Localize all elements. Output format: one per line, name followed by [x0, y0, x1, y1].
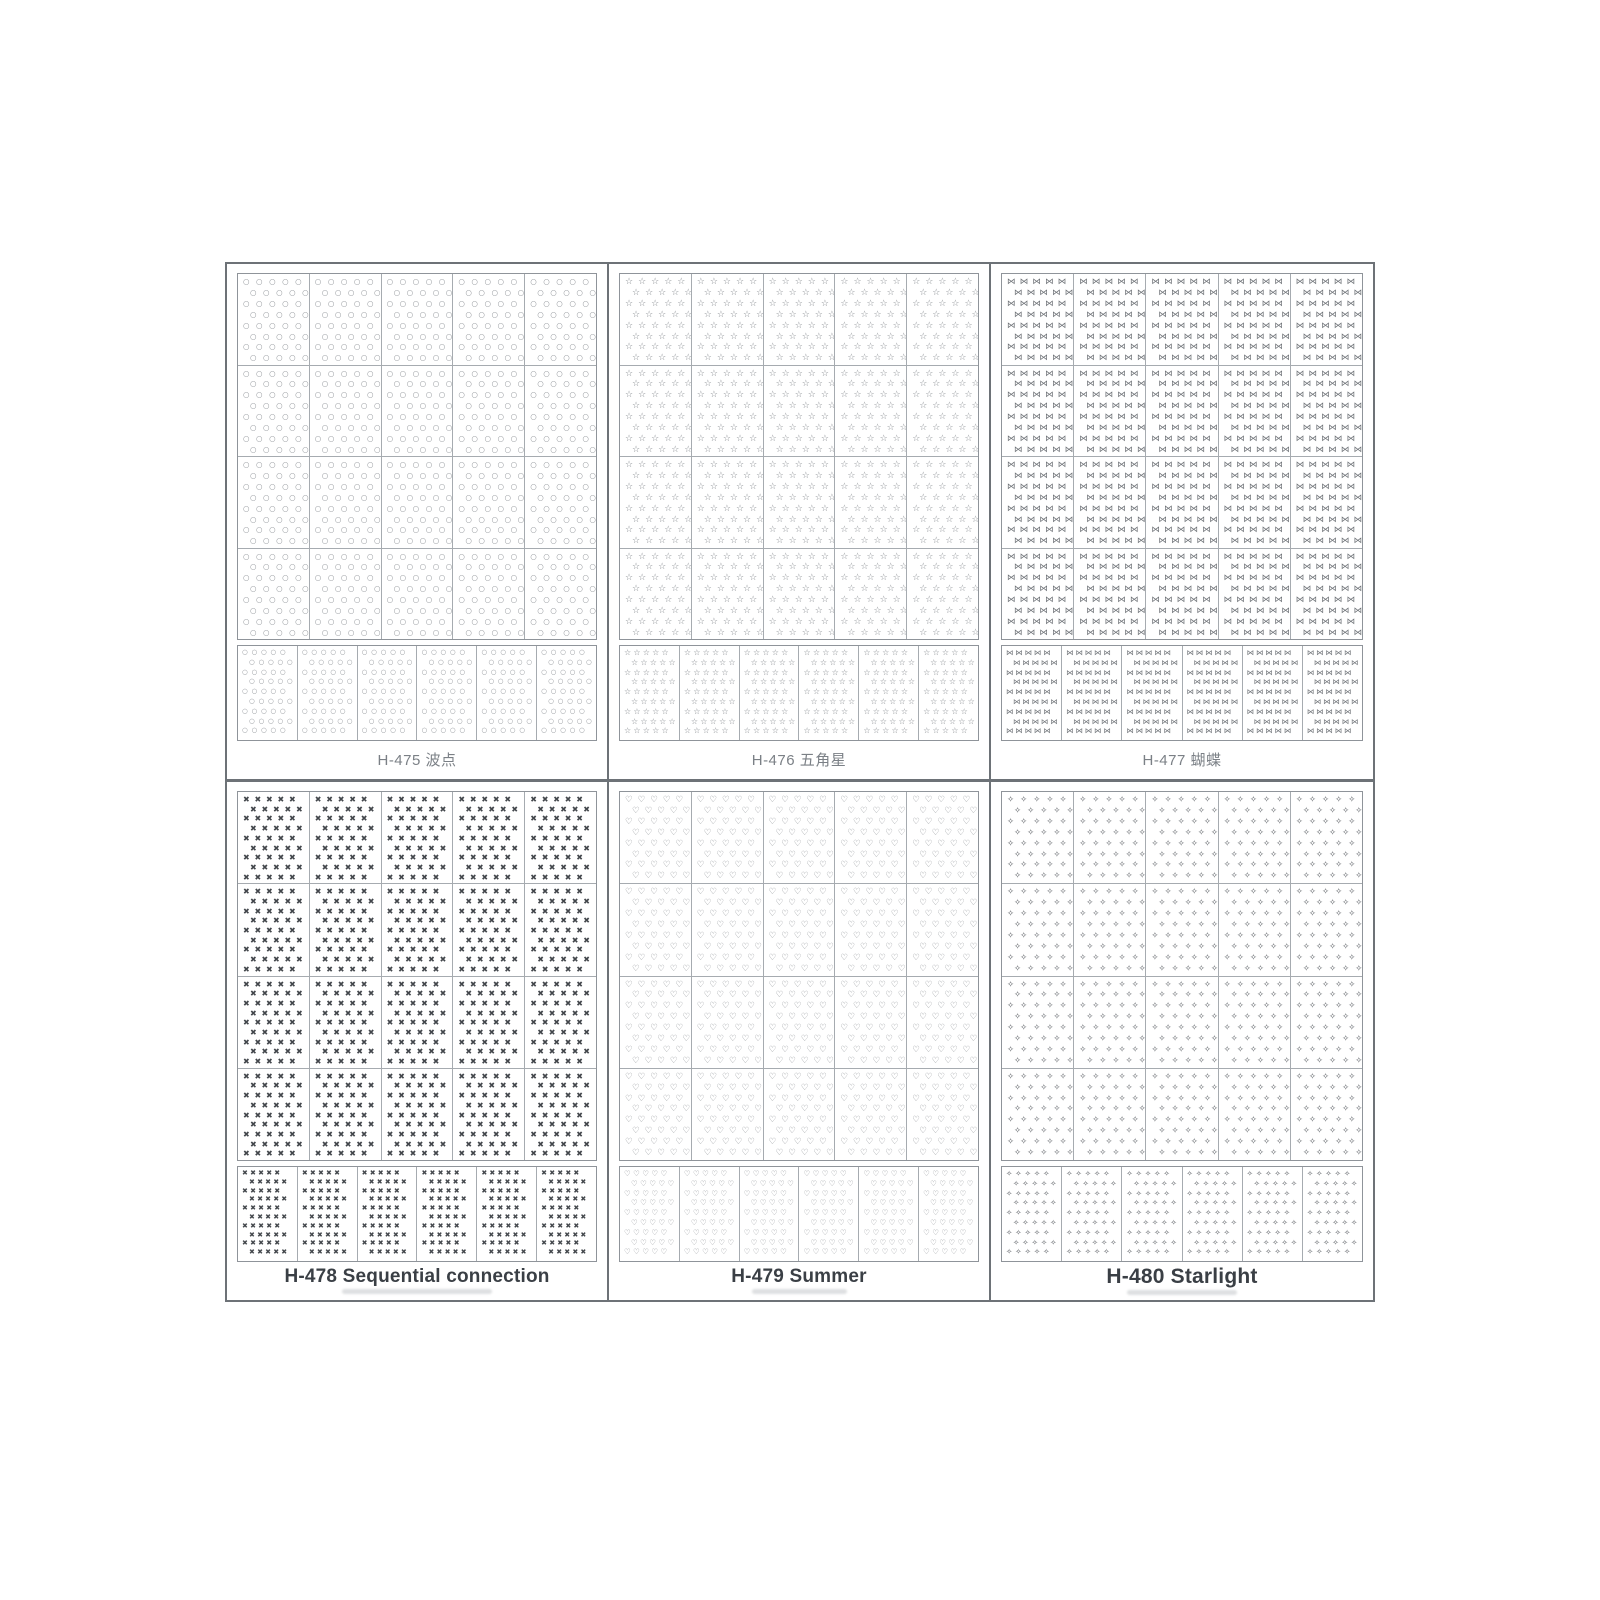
glyph-row: ☆☆☆☆☆: [697, 379, 763, 390]
glyph-row: ✖✖✖✖✖: [315, 936, 381, 946]
glyph-row: ⋈⋈⋈⋈⋈: [1066, 648, 1121, 658]
pattern-cell: ⋈⋈⋈⋈⋈⋈⋈⋈⋈⋈⋈⋈⋈⋈⋈⋈⋈⋈⋈⋈⋈⋈⋈⋈⋈⋈⋈⋈⋈⋈⋈⋈⋈⋈⋈⋈⋈⋈⋈⋈: [1074, 457, 1145, 548]
glyph-row: ✖✖✖✖✖: [421, 1239, 476, 1248]
glyph-row: ⋈⋈⋈⋈⋈: [1007, 412, 1073, 423]
glyph-row: ☆☆☆☆☆: [684, 648, 739, 658]
glyph-row: ✖✖✖✖✖: [302, 1169, 357, 1178]
glyph-row: ⋈⋈⋈⋈⋈: [1079, 369, 1145, 380]
glyph-row: ✧✧✧✧✧: [1079, 898, 1145, 909]
glyph-row: ✖✖✖✖✖: [530, 824, 596, 834]
glyph-row: ○○○○○: [458, 353, 524, 364]
glyph-row: ○○○○○: [421, 677, 476, 687]
glyph-row: ○○○○○: [530, 584, 596, 595]
glyph-row: ✧✧✧✧✧: [1187, 1208, 1242, 1218]
glyph-row: ✧✧✧✧✧: [1151, 980, 1217, 991]
glyph-row: ♡♡♡♡♡: [697, 1094, 763, 1105]
pattern-strip: ○○○○○○○○○○○○○○○○○○○○○○○○○○○○○○○○○○○○○○○○…: [298, 646, 357, 740]
glyph-row: ○○○○○: [458, 423, 524, 434]
pattern-cell: ☆☆☆☆☆☆☆☆☆☆☆☆☆☆☆☆☆☆☆☆☆☆☆☆☆☆☆☆☆☆☆☆☆☆☆☆☆☆☆☆: [620, 457, 691, 548]
glyph-row: ✧✧✧✧✧: [1307, 1198, 1362, 1208]
glyph-row: ♡♡♡♡♡: [912, 887, 978, 898]
glyph-row: ♡♡♡♡♡: [769, 806, 835, 817]
pattern-strip: ⋈⋈⋈⋈⋈⋈⋈⋈⋈⋈⋈⋈⋈⋈⋈⋈⋈⋈⋈⋈⋈⋈⋈⋈⋈⋈⋈⋈⋈⋈⋈⋈⋈⋈⋈⋈⋈⋈⋈⋈…: [1243, 646, 1302, 740]
glyph-row: ⋈⋈⋈⋈⋈: [1151, 493, 1217, 504]
glyph-row: ♡♡♡♡♡: [625, 1045, 691, 1056]
glyph-row: ☆☆☆☆☆: [769, 332, 835, 343]
glyph-row: ⋈⋈⋈⋈⋈: [1151, 423, 1217, 434]
glyph-row: ✧✧✧✧✧: [1007, 1045, 1073, 1056]
glyph-row: ♡♡♡♡♡: [769, 1001, 835, 1012]
glyph-row: ✧✧✧✧✧: [1007, 887, 1073, 898]
pattern-cell: ♡♡♡♡♡♡♡♡♡♡♡♡♡♡♡♡♡♡♡♡♡♡♡♡♡♡♡♡♡♡♡♡♡♡♡♡♡♡♡♡: [835, 1069, 906, 1160]
glyph-row: ○○○○○: [362, 668, 417, 678]
glyph-row: ☆☆☆☆☆: [625, 299, 691, 310]
glyph-row: ⋈⋈⋈⋈⋈: [1079, 493, 1145, 504]
pattern-strip: ○○○○○○○○○○○○○○○○○○○○○○○○○○○○○○○○○○○○○○○○…: [417, 646, 476, 740]
glyph-row: ♡♡♡♡♡: [840, 806, 906, 817]
glyph-row: ⋈⋈⋈⋈⋈: [1224, 445, 1290, 456]
glyph-row: ○○○○○: [387, 288, 453, 299]
glyph-row: ♡♡♡♡♡: [840, 1056, 906, 1067]
glyph-row: ♡♡♡♡♡: [625, 1056, 691, 1067]
glyph-row: ○○○○○: [242, 717, 297, 727]
glyph-row: ☆☆☆☆☆: [697, 288, 763, 299]
glyph-row: ○○○○○: [243, 504, 309, 515]
pattern-cell: ♡♡♡♡♡♡♡♡♡♡♡♡♡♡♡♡♡♡♡♡♡♡♡♡♡♡♡♡♡♡♡♡♡♡♡♡♡♡♡♡: [620, 1069, 691, 1160]
glyph-row: ✧✧✧✧✧: [1224, 1023, 1290, 1034]
glyph-row: ✧✧✧✧✧: [1296, 850, 1362, 861]
glyph-row: ○○○○○: [458, 573, 524, 584]
glyph-row: ☆☆☆☆☆: [769, 299, 835, 310]
glyph-row: ○○○○○: [315, 525, 381, 536]
glyph-row: ○○○○○: [530, 445, 596, 456]
glyph-row: ⋈⋈⋈⋈⋈: [1079, 525, 1145, 536]
pattern-strip: ✧✧✧✧✧✧✧✧✧✧✧✧✧✧✧✧✧✧✧✧✧✧✧✧✧✧✧✧✧✧✧✧✧✧✧✧✧✧✧✧…: [1303, 1167, 1362, 1261]
glyph-row: ✧✧✧✧✧: [1224, 1056, 1290, 1067]
glyph-row: ♡♡♡♡♡: [697, 964, 763, 975]
glyph-row: ✖✖✖✖✖: [302, 1187, 357, 1196]
glyph-row: ☆☆☆☆☆: [840, 617, 906, 628]
glyph-row: ⋈⋈⋈⋈⋈: [1247, 687, 1302, 697]
glyph-row: ☆☆☆☆☆: [840, 536, 906, 547]
glyph-row: ✧✧✧✧✧: [1006, 1228, 1061, 1238]
glyph-row: ✧✧✧✧✧: [1079, 871, 1145, 882]
glyph-row: ⋈⋈⋈⋈⋈: [1079, 617, 1145, 628]
glyph-row: ⋈⋈⋈⋈⋈: [1307, 707, 1362, 717]
glyph-row: ✧✧✧✧✧: [1224, 806, 1290, 817]
glyph-row: ○○○○○: [243, 379, 309, 390]
glyph-row: ⋈⋈⋈⋈⋈: [1126, 648, 1181, 658]
glyph-row: ☆☆☆☆☆: [697, 369, 763, 380]
glyph-row: ✖✖✖✖✖: [458, 907, 524, 917]
glyph-row: ✧✧✧✧✧: [1296, 1137, 1362, 1148]
glyph-row: ○○○○○: [315, 332, 381, 343]
glyph-row: ✖✖✖✖✖: [315, 814, 381, 824]
glyph-row: ⋈⋈⋈⋈⋈: [1126, 668, 1181, 678]
glyph-row: ☆☆☆☆☆: [769, 353, 835, 364]
glyph-row: ✖✖✖✖✖: [530, 907, 596, 917]
glyph-row: ☆☆☆☆☆: [624, 677, 679, 687]
glyph-row: ⋈⋈⋈⋈⋈: [1224, 617, 1290, 628]
glyph-row: ♡♡♡♡♡: [625, 806, 691, 817]
glyph-row: ✧✧✧✧✧: [1079, 953, 1145, 964]
glyph-row: ♡♡♡♡♡: [840, 839, 906, 850]
glyph-row: ♡♡♡♡♡: [625, 990, 691, 1001]
glyph-row: ♡♡♡♡♡: [863, 1179, 918, 1189]
pattern-cell: ☆☆☆☆☆☆☆☆☆☆☆☆☆☆☆☆☆☆☆☆☆☆☆☆☆☆☆☆☆☆☆☆☆☆☆☆☆☆☆☆: [692, 274, 763, 365]
glyph-row: ☆☆☆☆☆: [912, 482, 978, 493]
glyph-row: ✖✖✖✖✖: [315, 1028, 381, 1038]
glyph-row: ○○○○○: [458, 379, 524, 390]
glyph-row: ⋈⋈⋈⋈⋈: [1296, 617, 1362, 628]
glyph-row: ♡♡♡♡♡: [803, 1179, 858, 1189]
glyph-row: ☆☆☆☆☆: [625, 504, 691, 515]
glyph-row: ✧✧✧✧✧: [1079, 817, 1145, 828]
glyph-row: ☆☆☆☆☆: [625, 423, 691, 434]
pattern-cell: ✖✖✖✖✖✖✖✖✖✖✖✖✖✖✖✖✖✖✖✖✖✖✖✖✖✖✖✖✖✖✖✖✖✖✖✖✖✖✖✖…: [525, 884, 596, 975]
glyph-row: ✧✧✧✧✧: [1296, 1034, 1362, 1045]
glyph-row: ✧✧✧✧✧: [1007, 898, 1073, 909]
glyph-row: ✧✧✧✧✧: [1007, 795, 1073, 806]
glyph-row: ✧✧✧✧✧: [1007, 1072, 1073, 1083]
sparkle-strip-row: ✧✧✧✧✧✧✧✧✧✧✧✧✧✧✧✧✧✧✧✧✧✧✧✧✧✧✧✧✧✧✧✧✧✧✧✧✧✧✧✧…: [1001, 1166, 1363, 1262]
glyph-row: ✧✧✧✧✧: [1307, 1218, 1362, 1228]
glyph-row: ✖✖✖✖✖: [243, 916, 309, 926]
glyph-row: ○○○○○: [243, 482, 309, 493]
glyph-row: ○○○○○: [315, 482, 381, 493]
glyph-row: ⋈⋈⋈⋈⋈: [1007, 332, 1073, 343]
glyph-row: ⋈⋈⋈⋈⋈: [1007, 628, 1073, 639]
glyph-row: ⋈⋈⋈⋈⋈: [1006, 668, 1061, 678]
glyph-row: ☆☆☆☆☆: [840, 434, 906, 445]
glyph-row: ⋈⋈⋈⋈⋈: [1007, 310, 1073, 321]
glyph-row: ⋈⋈⋈⋈⋈: [1247, 697, 1302, 707]
pattern-cell: ♡♡♡♡♡♡♡♡♡♡♡♡♡♡♡♡♡♡♡♡♡♡♡♡♡♡♡♡♡♡♡♡♡♡♡♡♡♡♡♡: [764, 1069, 835, 1160]
pattern-cell: ✧✧✧✧✧✧✧✧✧✧✧✧✧✧✧✧✧✧✧✧✧✧✧✧✧✧✧✧✧✧✧✧✧✧✧✧✧✧✧✧: [1219, 792, 1290, 883]
glyph-row: ✧✧✧✧✧: [1296, 942, 1362, 953]
pattern-cell: ✧✧✧✧✧✧✧✧✧✧✧✧✧✧✧✧✧✧✧✧✧✧✧✧✧✧✧✧✧✧✧✧✧✧✧✧✧✧✧✧: [1146, 977, 1217, 1068]
glyph-row: ✖✖✖✖✖: [530, 999, 596, 1009]
pattern-cell: ☆☆☆☆☆☆☆☆☆☆☆☆☆☆☆☆☆☆☆☆☆☆☆☆☆☆☆☆☆☆☆☆☆☆☆☆☆☆☆☆: [764, 457, 835, 548]
glyph-row: ⋈⋈⋈⋈⋈: [1224, 536, 1290, 547]
glyph-row: ○○○○○: [458, 277, 524, 288]
pattern-cell: ✧✧✧✧✧✧✧✧✧✧✧✧✧✧✧✧✧✧✧✧✧✧✧✧✧✧✧✧✧✧✧✧✧✧✧✧✧✧✧✧: [1002, 884, 1073, 975]
pattern-cell: ⋈⋈⋈⋈⋈⋈⋈⋈⋈⋈⋈⋈⋈⋈⋈⋈⋈⋈⋈⋈⋈⋈⋈⋈⋈⋈⋈⋈⋈⋈⋈⋈⋈⋈⋈⋈⋈⋈⋈⋈: [1219, 366, 1290, 457]
glyph-row: ♡♡♡♡♡: [625, 1126, 691, 1137]
glyph-row: ☆☆☆☆☆: [912, 525, 978, 536]
pattern-cell: ⋈⋈⋈⋈⋈⋈⋈⋈⋈⋈⋈⋈⋈⋈⋈⋈⋈⋈⋈⋈⋈⋈⋈⋈⋈⋈⋈⋈⋈⋈⋈⋈⋈⋈⋈⋈⋈⋈⋈⋈: [1291, 457, 1362, 548]
glyph-row: ♡♡♡♡♡: [863, 1238, 918, 1248]
glyph-row: ✧✧✧✧✧: [1151, 942, 1217, 953]
glyph-row: ♡♡♡♡♡: [684, 1208, 739, 1218]
glyph-row: ✧✧✧✧✧: [1224, 1115, 1290, 1126]
glyph-row: ⋈⋈⋈⋈⋈: [1296, 321, 1362, 332]
glyph-row: ✧✧✧✧✧: [1296, 839, 1362, 850]
glyph-row: ✖✖✖✖✖: [421, 1195, 476, 1204]
glyph-row: ♡♡♡♡♡: [912, 1083, 978, 1094]
glyph-row: ☆☆☆☆☆: [684, 677, 739, 687]
glyph-row: ○○○○○: [243, 460, 309, 471]
glyph-row: ☆☆☆☆☆: [625, 390, 691, 401]
glyph-row: ⋈⋈⋈⋈⋈: [1151, 482, 1217, 493]
pattern-cell: ☆☆☆☆☆☆☆☆☆☆☆☆☆☆☆☆☆☆☆☆☆☆☆☆☆☆☆☆☆☆☆☆☆☆☆☆☆☆☆☆: [907, 457, 978, 548]
glyph-row: ✧✧✧✧✧: [1007, 990, 1073, 1001]
glyph-row: ✖✖✖✖✖: [458, 1038, 524, 1048]
pattern-strip: ✧✧✧✧✧✧✧✧✧✧✧✧✧✧✧✧✧✧✧✧✧✧✧✧✧✧✧✧✧✧✧✧✧✧✧✧✧✧✧✧…: [1183, 1167, 1242, 1261]
glyph-row: ✖✖✖✖✖: [541, 1204, 596, 1213]
glyph-row: ○○○○○: [362, 697, 417, 707]
glyph-row: ✧✧✧✧✧: [1007, 1012, 1073, 1023]
glyph-row: ☆☆☆☆☆: [625, 515, 691, 526]
glyph-row: ✖✖✖✖✖: [315, 795, 381, 805]
glyph-row: ✖✖✖✖✖: [458, 897, 524, 907]
glyph-row: ✧✧✧✧✧: [1079, 1001, 1145, 1012]
pattern-cell: ✧✧✧✧✧✧✧✧✧✧✧✧✧✧✧✧✧✧✧✧✧✧✧✧✧✧✧✧✧✧✧✧✧✧✧✧✧✧✧✧: [1146, 884, 1217, 975]
glyph-row: ⋈⋈⋈⋈⋈: [1079, 536, 1145, 547]
glyph-row: ♡♡♡♡♡: [697, 931, 763, 942]
glyph-row: ♡♡♡♡♡: [912, 931, 978, 942]
glyph-row: ✖✖✖✖✖: [315, 1009, 381, 1019]
glyph-row: ☆☆☆☆☆: [840, 573, 906, 584]
glyph-row: ☆☆☆☆☆: [744, 726, 799, 736]
print-smudge: [1127, 1290, 1237, 1295]
pattern-cell: ♡♡♡♡♡♡♡♡♡♡♡♡♡♡♡♡♡♡♡♡♡♡♡♡♡♡♡♡♡♡♡♡♡♡♡♡♡♡♡♡: [835, 977, 906, 1068]
glyph-row: ✧✧✧✧✧: [1247, 1247, 1302, 1257]
glyph-row: ☆☆☆☆☆: [912, 606, 978, 617]
glyph-row: ✧✧✧✧✧: [1151, 931, 1217, 942]
glyph-row: ○○○○○: [387, 471, 453, 482]
glyph-row: ✧✧✧✧✧: [1079, 920, 1145, 931]
glyph-row: ⋈⋈⋈⋈⋈: [1007, 434, 1073, 445]
glyph-row: ♡♡♡♡♡: [625, 795, 691, 806]
glyph-row: ☆☆☆☆☆: [625, 552, 691, 563]
glyph-row: ♡♡♡♡♡: [684, 1247, 739, 1257]
glyph-row: ⋈⋈⋈⋈⋈: [1151, 434, 1217, 445]
glyph-row: ✖✖✖✖✖: [243, 1130, 309, 1140]
glyph-row: ♡♡♡♡♡: [697, 1072, 763, 1083]
glyph-row: ✖✖✖✖✖: [541, 1248, 596, 1257]
glyph-row: ✖✖✖✖✖: [362, 1248, 417, 1257]
glyph-row: ✖✖✖✖✖: [481, 1222, 536, 1231]
glyph-row: ♡♡♡♡♡: [840, 1001, 906, 1012]
glyph-row: ○○○○○: [458, 536, 524, 547]
glyph-row: ○○○○○: [530, 595, 596, 606]
glyph-row: ☆☆☆☆☆: [697, 434, 763, 445]
glyph-row: ⋈⋈⋈⋈⋈: [1296, 434, 1362, 445]
glyph-row: ✖✖✖✖✖: [530, 1057, 596, 1067]
glyph-row: ✖✖✖✖✖: [530, 897, 596, 907]
pattern-cell: ✖✖✖✖✖✖✖✖✖✖✖✖✖✖✖✖✖✖✖✖✖✖✖✖✖✖✖✖✖✖✖✖✖✖✖✖✖✖✖✖…: [453, 1069, 524, 1160]
glyph-row: ♡♡♡♡♡: [803, 1169, 858, 1179]
glyph-row: ○○○○○: [458, 584, 524, 595]
glyph-row: ✧✧✧✧✧: [1079, 828, 1145, 839]
glyph-row: ✖✖✖✖✖: [387, 1028, 453, 1038]
glyph-row: ✧✧✧✧✧: [1224, 990, 1290, 1001]
glyph-row: ♡♡♡♡♡: [769, 1056, 835, 1067]
glyph-row: ○○○○○: [315, 342, 381, 353]
glyph-row: ☆☆☆☆☆: [769, 288, 835, 299]
pattern-cell: ⋈⋈⋈⋈⋈⋈⋈⋈⋈⋈⋈⋈⋈⋈⋈⋈⋈⋈⋈⋈⋈⋈⋈⋈⋈⋈⋈⋈⋈⋈⋈⋈⋈⋈⋈⋈⋈⋈⋈⋈: [1002, 549, 1073, 640]
pattern-cell: ☆☆☆☆☆☆☆☆☆☆☆☆☆☆☆☆☆☆☆☆☆☆☆☆☆☆☆☆☆☆☆☆☆☆☆☆☆☆☆☆: [835, 549, 906, 640]
glyph-row: ○○○○○: [362, 677, 417, 687]
glyph-row: ✖✖✖✖✖: [243, 1101, 309, 1111]
glyph-row: ♡♡♡♡♡: [912, 1104, 978, 1115]
pattern-cell: ☆☆☆☆☆☆☆☆☆☆☆☆☆☆☆☆☆☆☆☆☆☆☆☆☆☆☆☆☆☆☆☆☆☆☆☆☆☆☆☆: [907, 549, 978, 640]
glyph-row: ○○○○○: [387, 321, 453, 332]
glyph-row: ⋈⋈⋈⋈⋈: [1296, 628, 1362, 639]
glyph-row: ⋈⋈⋈⋈⋈: [1066, 677, 1121, 687]
glyph-row: ⋈⋈⋈⋈⋈: [1079, 552, 1145, 563]
glyph-row: ○○○○○: [387, 606, 453, 617]
glyph-row: ⋈⋈⋈⋈⋈: [1296, 562, 1362, 573]
glyph-row: ○○○○○: [315, 299, 381, 310]
glyph-row: ○○○○○: [302, 697, 357, 707]
butterfly-strip-row: ⋈⋈⋈⋈⋈⋈⋈⋈⋈⋈⋈⋈⋈⋈⋈⋈⋈⋈⋈⋈⋈⋈⋈⋈⋈⋈⋈⋈⋈⋈⋈⋈⋈⋈⋈⋈⋈⋈⋈⋈…: [1001, 645, 1363, 741]
glyph-row: ♡♡♡♡♡: [769, 953, 835, 964]
glyph-row: ♡♡♡♡♡: [912, 795, 978, 806]
glyph-row: ♡♡♡♡♡: [697, 980, 763, 991]
pattern-strip: ☆☆☆☆☆☆☆☆☆☆☆☆☆☆☆☆☆☆☆☆☆☆☆☆☆☆☆☆☆☆☆☆☆☆☆☆☆☆☆☆…: [740, 646, 799, 740]
glyph-row: ⋈⋈⋈⋈⋈: [1296, 471, 1362, 482]
pattern-cell: ⋈⋈⋈⋈⋈⋈⋈⋈⋈⋈⋈⋈⋈⋈⋈⋈⋈⋈⋈⋈⋈⋈⋈⋈⋈⋈⋈⋈⋈⋈⋈⋈⋈⋈⋈⋈⋈⋈⋈⋈: [1002, 274, 1073, 365]
glyph-row: ⋈⋈⋈⋈⋈: [1007, 536, 1073, 547]
glyph-row: ✖✖✖✖✖: [387, 1009, 453, 1019]
glyph-row: ✧✧✧✧✧: [1126, 1169, 1181, 1179]
glyph-row: ✧✧✧✧✧: [1187, 1198, 1242, 1208]
glyph-row: ✧✧✧✧✧: [1007, 1001, 1073, 1012]
glyph-row: ♡♡♡♡♡: [840, 1148, 906, 1159]
glyph-row: ⋈⋈⋈⋈⋈: [1247, 668, 1302, 678]
glyph-row: ○○○○○: [458, 460, 524, 471]
glyph-row: ✧✧✧✧✧: [1296, 871, 1362, 882]
glyph-row: ⋈⋈⋈⋈⋈: [1224, 332, 1290, 343]
glyph-row: ⋈⋈⋈⋈⋈: [1079, 379, 1145, 390]
glyph-row: ☆☆☆☆☆: [624, 707, 679, 717]
glyph-row: ✧✧✧✧✧: [1296, 1072, 1362, 1083]
glyph-row: ♡♡♡♡♡: [744, 1228, 799, 1238]
pattern-cell: ○○○○○○○○○○○○○○○○○○○○○○○○○○○○○○○○○○○○○○○○: [453, 549, 524, 640]
glyph-row: ⋈⋈⋈⋈⋈: [1151, 595, 1217, 606]
glyph-row: ○○○○○: [458, 482, 524, 493]
glyph-row: ♡♡♡♡♡: [625, 850, 691, 861]
glyph-row: ⋈⋈⋈⋈⋈: [1296, 277, 1362, 288]
panel-label-area: H-478 Sequential connection: [237, 1264, 597, 1296]
glyph-row: ✖✖✖✖✖: [315, 824, 381, 834]
glyph-row: ♡♡♡♡♡: [624, 1228, 679, 1238]
glyph-row: ○○○○○: [421, 717, 476, 727]
glyph-row: ♡♡♡♡♡: [697, 1126, 763, 1137]
glyph-row: ⋈⋈⋈⋈⋈: [1187, 697, 1242, 707]
glyph-row: ✖✖✖✖✖: [243, 1038, 309, 1048]
pattern-strip: ✧✧✧✧✧✧✧✧✧✧✧✧✧✧✧✧✧✧✧✧✧✧✧✧✧✧✧✧✧✧✧✧✧✧✧✧✧✧✧✧…: [1002, 1167, 1061, 1261]
glyph-row: ⋈⋈⋈⋈⋈: [1079, 584, 1145, 595]
glyph-row: ⋈⋈⋈⋈⋈: [1006, 707, 1061, 717]
glyph-row: ⋈⋈⋈⋈⋈: [1151, 525, 1217, 536]
glyph-row: ⋈⋈⋈⋈⋈: [1151, 460, 1217, 471]
sparkle-pattern-grid: ✧✧✧✧✧✧✧✧✧✧✧✧✧✧✧✧✧✧✧✧✧✧✧✧✧✧✧✧✧✧✧✧✧✧✧✧✧✧✧✧…: [1001, 791, 1363, 1161]
glyph-row: ✖✖✖✖✖: [541, 1222, 596, 1231]
glyph-row: ✖✖✖✖✖: [458, 1101, 524, 1111]
glyph-row: ☆☆☆☆☆: [624, 726, 679, 736]
pattern-cell: ✧✧✧✧✧✧✧✧✧✧✧✧✧✧✧✧✧✧✧✧✧✧✧✧✧✧✧✧✧✧✧✧✧✧✧✧✧✧✧✧: [1219, 884, 1290, 975]
glyph-row: ⋈⋈⋈⋈⋈: [1307, 726, 1362, 736]
glyph-row: ○○○○○: [243, 471, 309, 482]
glyph-row: ✖✖✖✖✖: [387, 1072, 453, 1082]
glyph-row: ⋈⋈⋈⋈⋈: [1151, 445, 1217, 456]
glyph-row: ✧✧✧✧✧: [1126, 1198, 1181, 1208]
glyph-row: ♡♡♡♡♡: [912, 898, 978, 909]
glyph-row: ☆☆☆☆☆: [697, 493, 763, 504]
glyph-row: ✧✧✧✧✧: [1296, 1148, 1362, 1159]
glyph-row: ⋈⋈⋈⋈⋈: [1224, 434, 1290, 445]
glyph-row: ♡♡♡♡♡: [744, 1169, 799, 1179]
glyph-row: ☆☆☆☆☆: [840, 342, 906, 353]
glyph-row: ✖✖✖✖✖: [458, 1081, 524, 1091]
glyph-row: ✧✧✧✧✧: [1079, 1115, 1145, 1126]
glyph-row: ✧✧✧✧✧: [1079, 1023, 1145, 1034]
glyph-row: ⋈⋈⋈⋈⋈: [1079, 460, 1145, 471]
pattern-cell: ○○○○○○○○○○○○○○○○○○○○○○○○○○○○○○○○○○○○○○○○: [382, 457, 453, 548]
glyph-row: ♡♡♡♡♡: [769, 860, 835, 871]
glyph-row: ✧✧✧✧✧: [1247, 1218, 1302, 1228]
glyph-row: ♡♡♡♡♡: [840, 860, 906, 871]
pattern-cell: ○○○○○○○○○○○○○○○○○○○○○○○○○○○○○○○○○○○○○○○○: [310, 549, 381, 640]
glyph-row: ✧✧✧✧✧: [1006, 1189, 1061, 1199]
glyph-row: ✖✖✖✖✖: [243, 814, 309, 824]
glyph-row: ✖✖✖✖✖: [315, 1111, 381, 1121]
glyph-row: ☆☆☆☆☆: [625, 342, 691, 353]
glyph-row: ○○○○○: [243, 617, 309, 628]
glyph-row: ♡♡♡♡♡: [697, 942, 763, 953]
glyph-row: ⋈⋈⋈⋈⋈: [1007, 606, 1073, 617]
glyph-row: ✧✧✧✧✧: [1296, 920, 1362, 931]
glyph-row: ○○○○○: [362, 687, 417, 697]
glyph-row: ⋈⋈⋈⋈⋈: [1079, 504, 1145, 515]
glyph-row: ♡♡♡♡♡: [912, 942, 978, 953]
glyph-row: ✖✖✖✖✖: [530, 1081, 596, 1091]
glyph-row: ♡♡♡♡♡: [863, 1228, 918, 1238]
glyph-row: ☆☆☆☆☆: [863, 726, 918, 736]
glyph-row: ⋈⋈⋈⋈⋈: [1224, 515, 1290, 526]
glyph-row: ☆☆☆☆☆: [697, 552, 763, 563]
glyph-row: ☆☆☆☆☆: [625, 493, 691, 504]
pattern-cell: ✖✖✖✖✖✖✖✖✖✖✖✖✖✖✖✖✖✖✖✖✖✖✖✖✖✖✖✖✖✖✖✖✖✖✖✖✖✖✖✖…: [238, 1069, 309, 1160]
glyph-row: ♡♡♡♡♡: [923, 1218, 978, 1228]
pattern-strip: ⋈⋈⋈⋈⋈⋈⋈⋈⋈⋈⋈⋈⋈⋈⋈⋈⋈⋈⋈⋈⋈⋈⋈⋈⋈⋈⋈⋈⋈⋈⋈⋈⋈⋈⋈⋈⋈⋈⋈⋈…: [1062, 646, 1121, 740]
glyph-row: ♡♡♡♡♡: [840, 887, 906, 898]
glyph-row: ♡♡♡♡♡: [744, 1198, 799, 1208]
glyph-row: ○○○○○: [315, 562, 381, 573]
pattern-cell: ☆☆☆☆☆☆☆☆☆☆☆☆☆☆☆☆☆☆☆☆☆☆☆☆☆☆☆☆☆☆☆☆☆☆☆☆☆☆☆☆: [620, 549, 691, 640]
glyph-row: ♡♡♡♡♡: [624, 1238, 679, 1248]
glyph-row: ⋈⋈⋈⋈⋈: [1307, 717, 1362, 727]
glyph-row: ○○○○○: [387, 390, 453, 401]
glyph-row: ✖✖✖✖✖: [541, 1178, 596, 1187]
glyph-row: ○○○○○: [243, 562, 309, 573]
glyph-row: ✖✖✖✖✖: [530, 945, 596, 955]
pattern-cell: ✧✧✧✧✧✧✧✧✧✧✧✧✧✧✧✧✧✧✧✧✧✧✧✧✧✧✧✧✧✧✧✧✧✧✧✧✧✧✧✧: [1219, 1069, 1290, 1160]
pattern-strip: ✧✧✧✧✧✧✧✧✧✧✧✧✧✧✧✧✧✧✧✧✧✧✧✧✧✧✧✧✧✧✧✧✧✧✧✧✧✧✧✧…: [1062, 1167, 1121, 1261]
glyph-row: ○○○○○: [315, 379, 381, 390]
glyph-row: ○○○○○: [387, 353, 453, 364]
glyph-row: ☆☆☆☆☆: [625, 628, 691, 639]
glyph-row: ✖✖✖✖✖: [458, 980, 524, 990]
glyph-row: ✧✧✧✧✧: [1307, 1238, 1362, 1248]
glyph-row: ☆☆☆☆☆: [769, 390, 835, 401]
glyph-row: ○○○○○: [387, 434, 453, 445]
pattern-strip: ☆☆☆☆☆☆☆☆☆☆☆☆☆☆☆☆☆☆☆☆☆☆☆☆☆☆☆☆☆☆☆☆☆☆☆☆☆☆☆☆…: [919, 646, 978, 740]
glyph-row: ✖✖✖✖✖: [387, 805, 453, 815]
